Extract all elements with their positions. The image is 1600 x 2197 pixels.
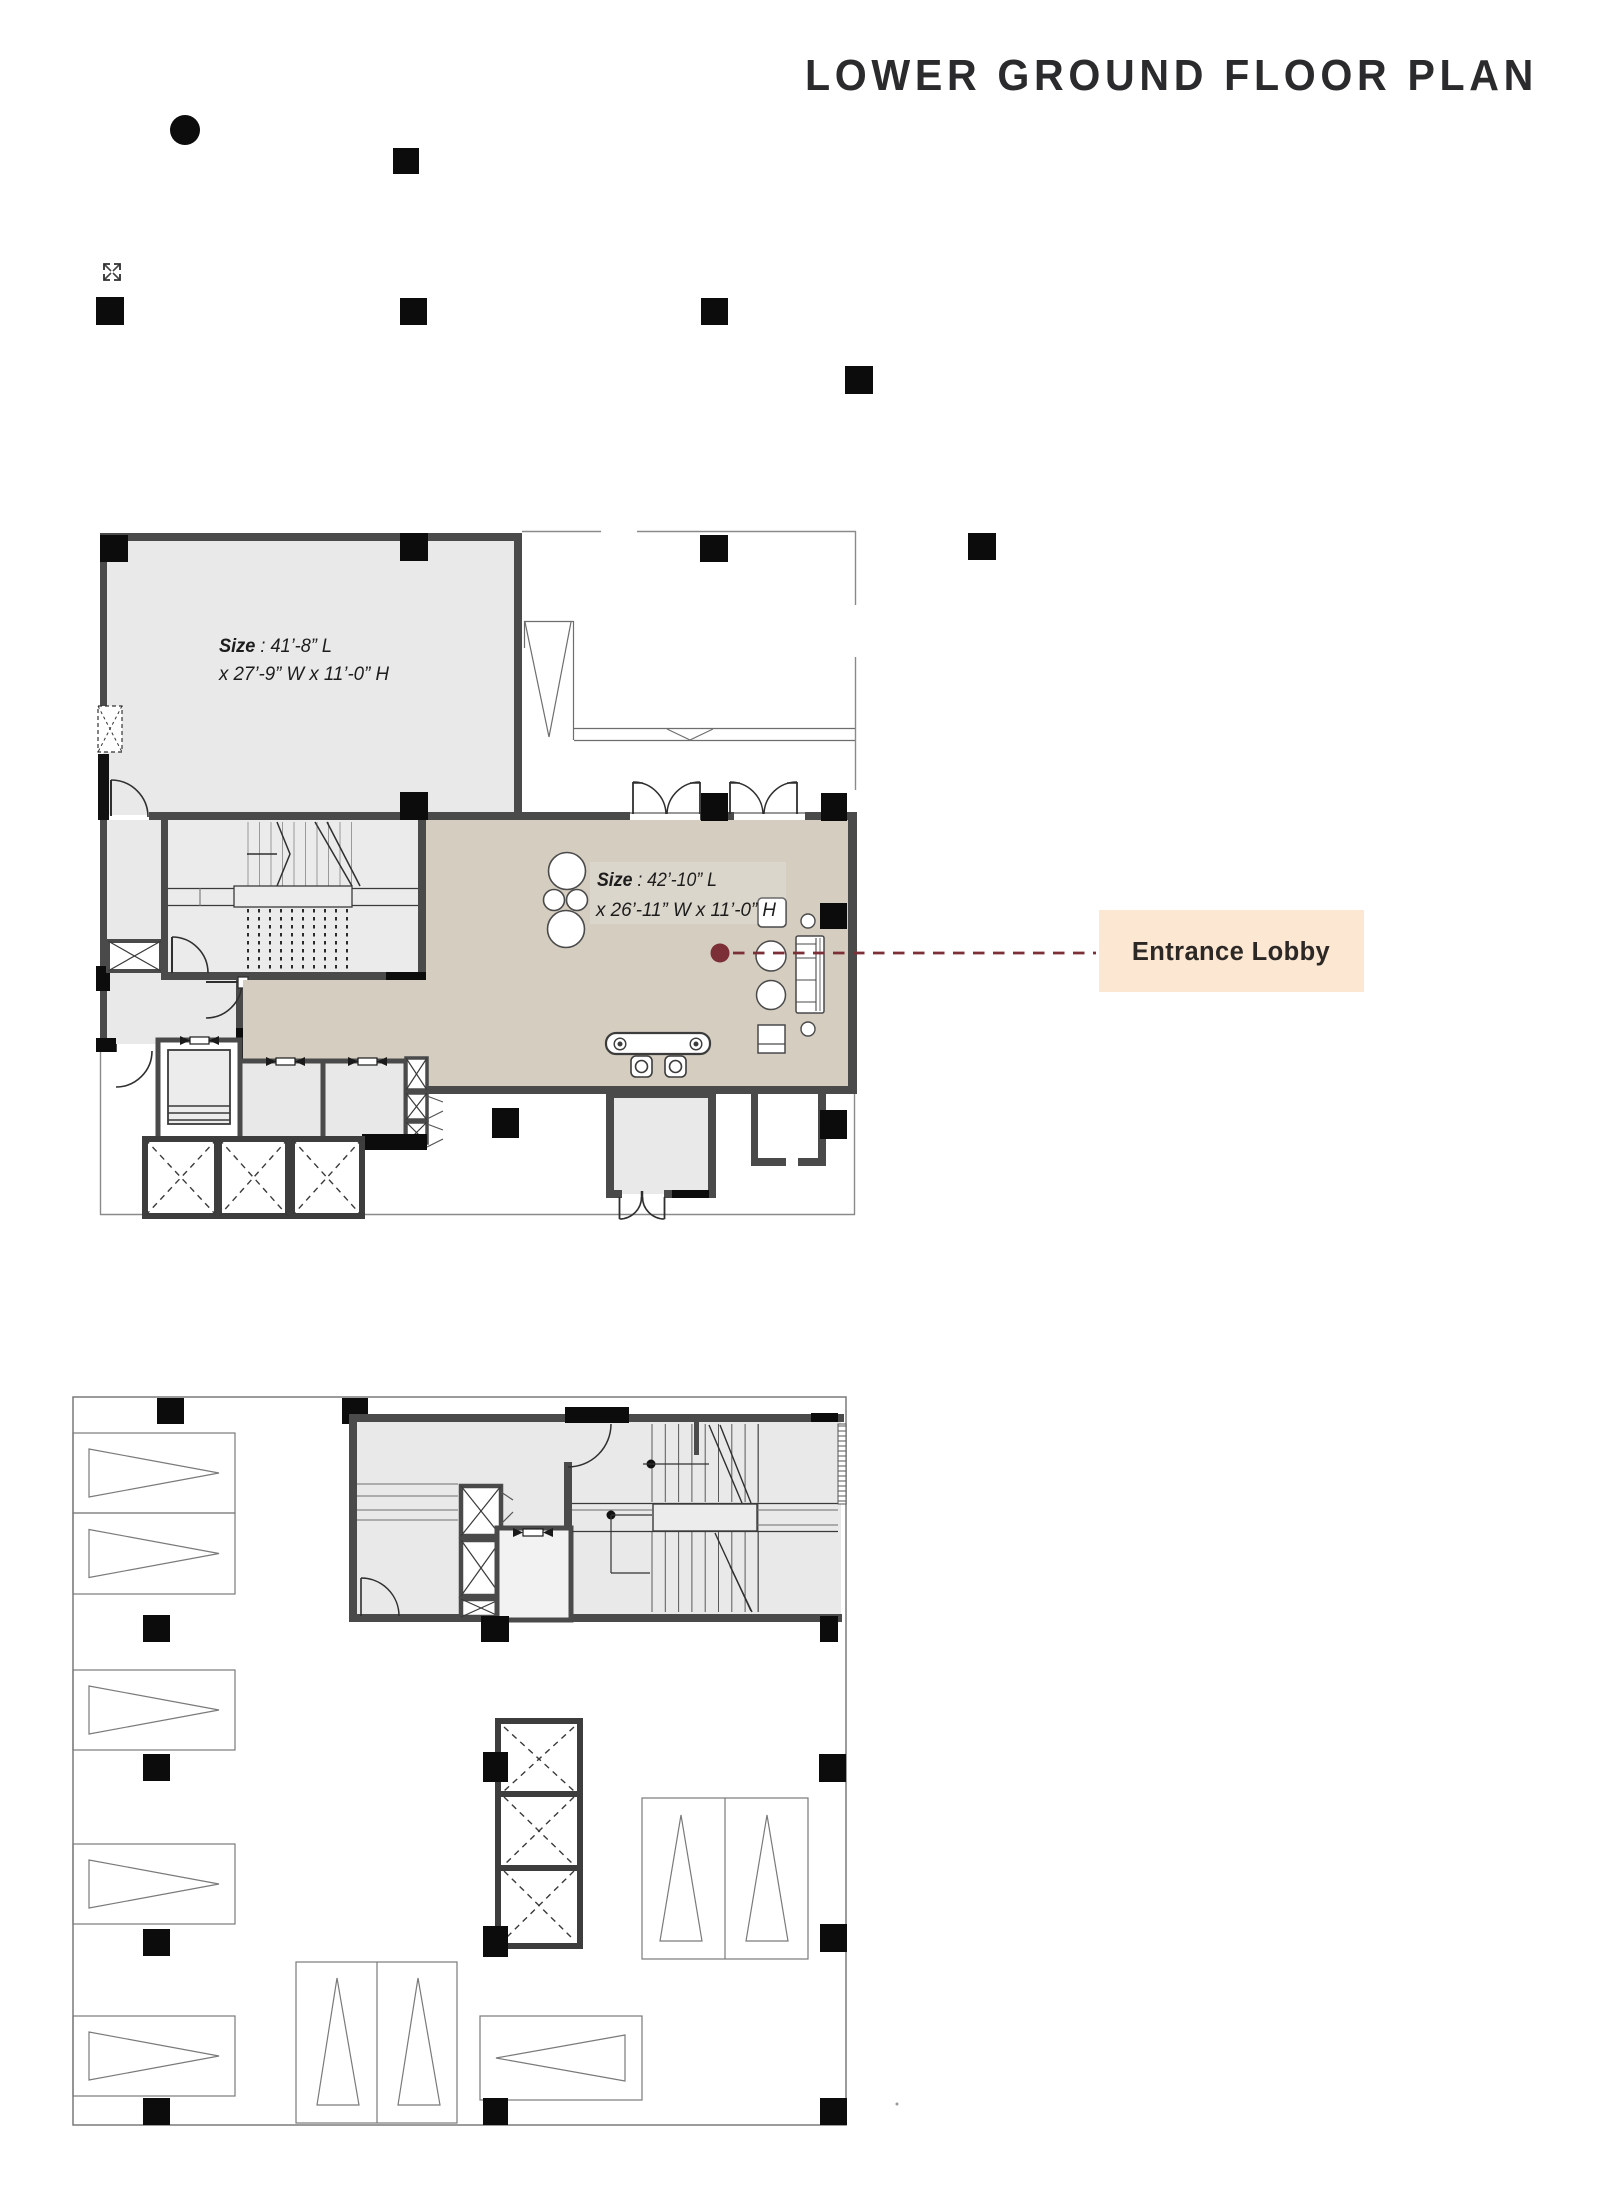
- svg-text:Size : 42’-10” L: Size : 42’-10” L: [597, 870, 717, 891]
- svg-text:LOWER GROUND FLOOR PLAN: LOWER GROUND FLOOR PLAN: [805, 51, 1538, 100]
- svg-text:x 27’-9” W x 11’-0” H: x 27’-9” W x 11’-0” H: [218, 664, 389, 685]
- svg-text:Entrance Lobby: Entrance Lobby: [1132, 938, 1331, 966]
- svg-text:Size : 41’-8” L: Size : 41’-8” L: [219, 636, 332, 657]
- svg-text:x 26’-11” W x 11’-0” H: x 26’-11” W x 11’-0” H: [595, 900, 776, 921]
